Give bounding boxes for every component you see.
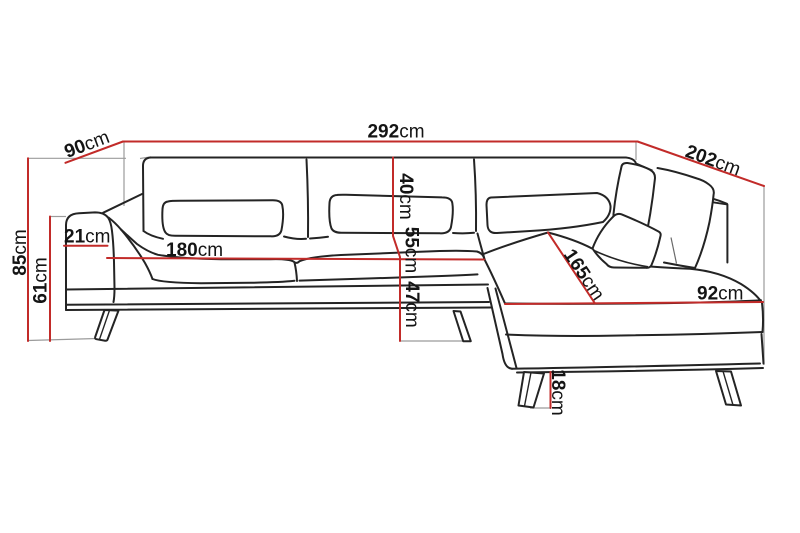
svg-text:21cm: 21cm [64,227,110,248]
svg-text:40cm: 40cm [395,173,416,219]
svg-text:61cm: 61cm [31,257,52,303]
svg-text:55cm: 55cm [401,227,422,273]
svg-text:180cm: 180cm [166,240,223,261]
svg-text:292cm: 292cm [367,122,424,143]
svg-text:85cm: 85cm [10,229,31,275]
svg-text:47cm: 47cm [401,281,422,327]
svg-text:92cm: 92cm [697,284,743,305]
svg-text:18cm: 18cm [547,369,568,415]
